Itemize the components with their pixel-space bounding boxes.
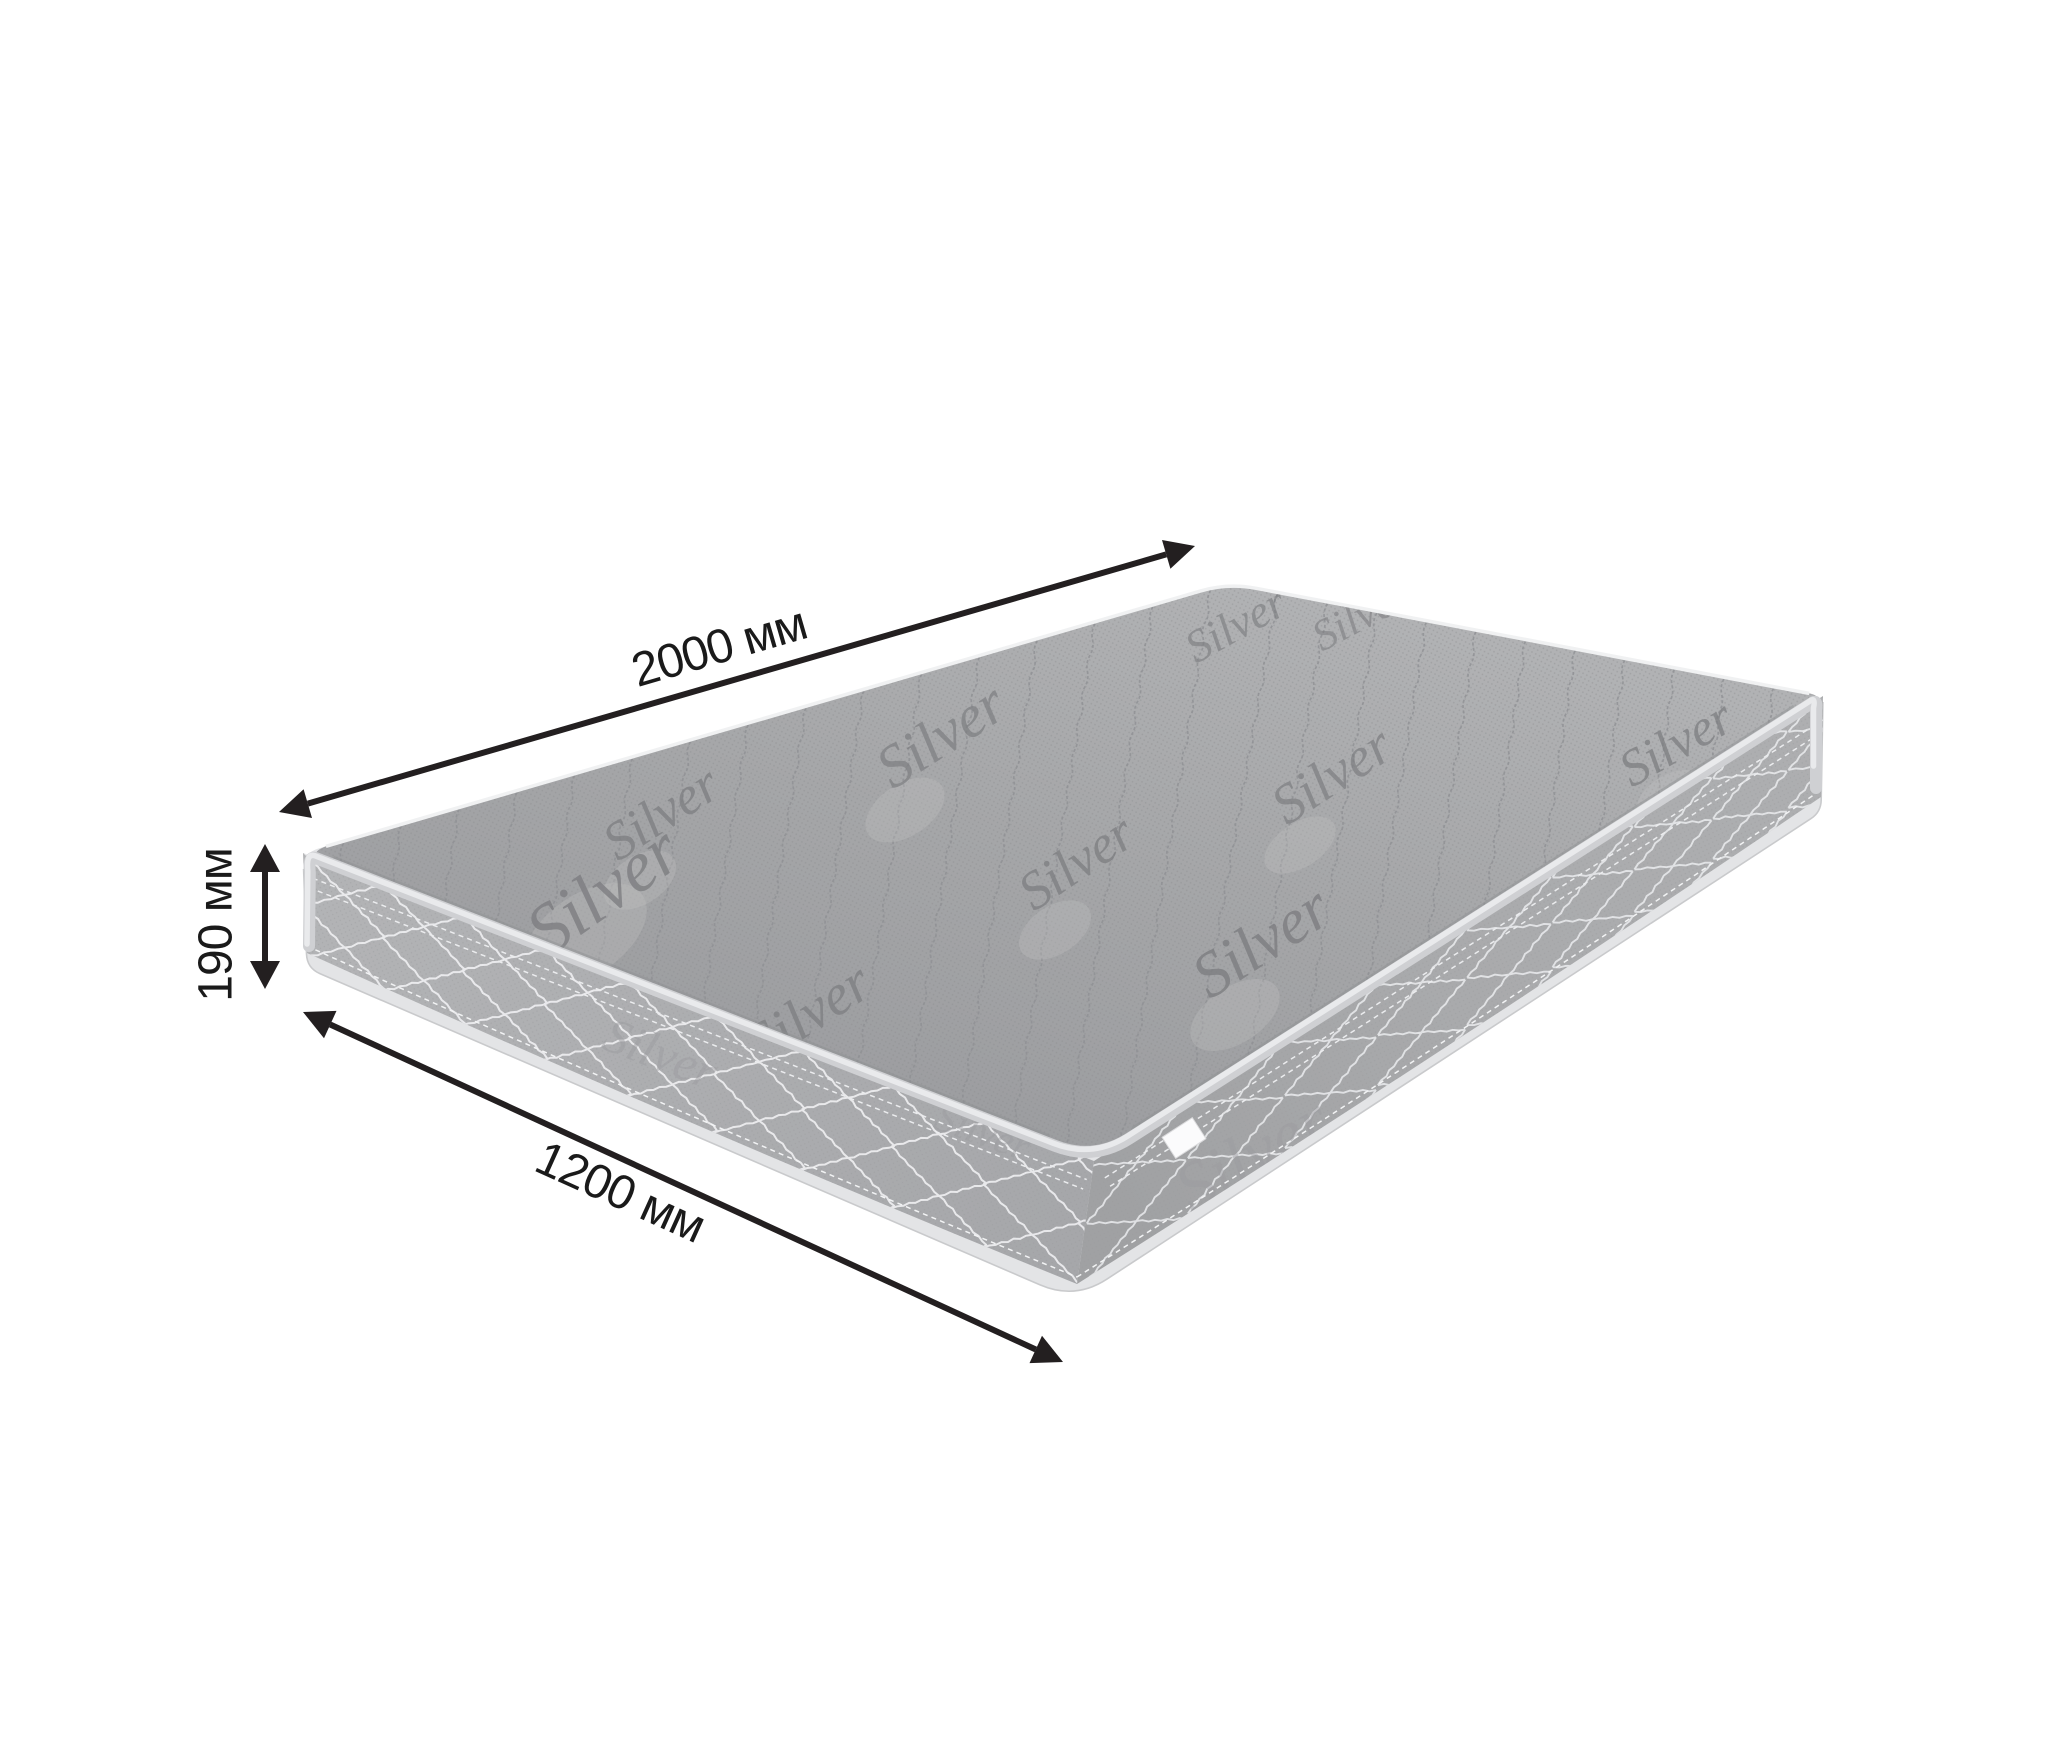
svg-text:190 мм: 190 мм <box>190 848 243 1001</box>
